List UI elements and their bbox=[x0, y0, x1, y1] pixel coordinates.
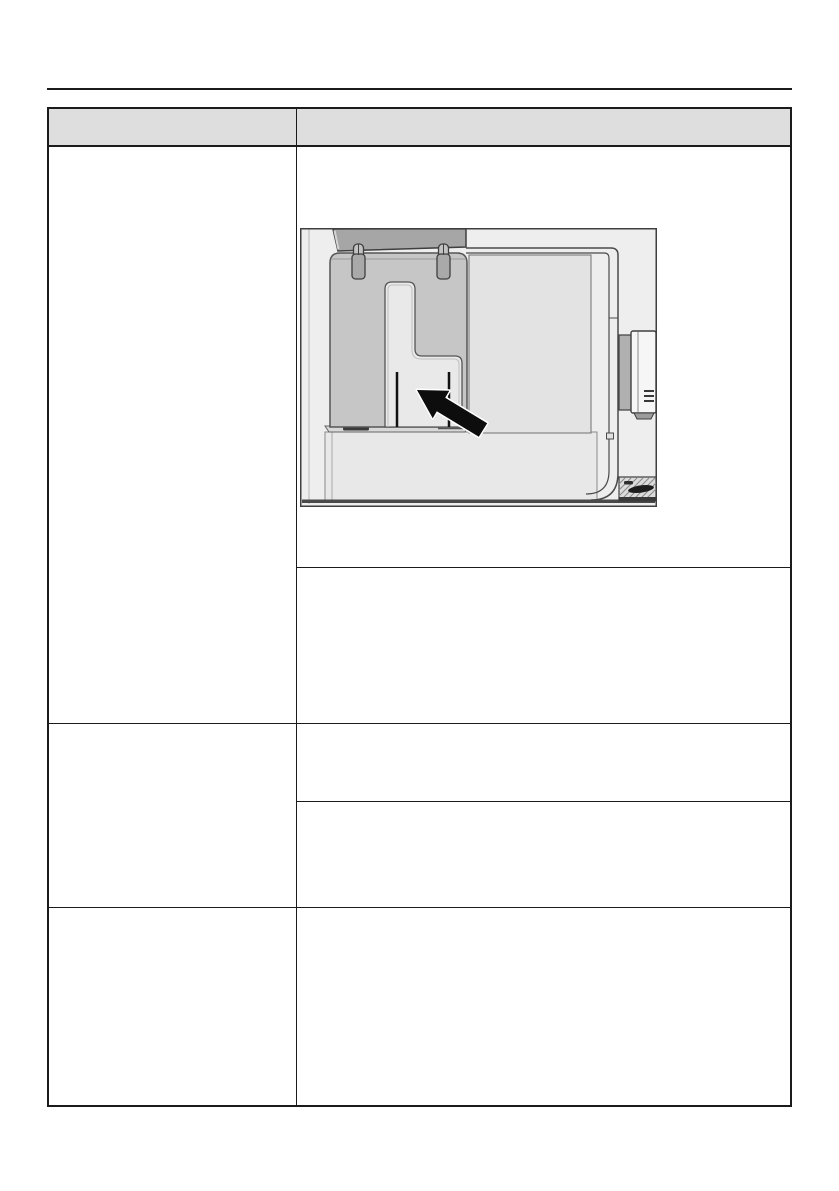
row1-right-cell-2 bbox=[297, 568, 790, 723]
drip-tray bbox=[619, 477, 656, 501]
base-front-panel bbox=[325, 432, 597, 500]
clip-icon bbox=[437, 244, 450, 279]
appliance-figure bbox=[300, 228, 657, 507]
header-rule bbox=[47, 88, 792, 90]
row3-right-cell bbox=[297, 908, 790, 1105]
dispenser-spout bbox=[619, 331, 656, 419]
table-row bbox=[49, 724, 790, 908]
table-row bbox=[49, 908, 790, 1105]
table-row bbox=[49, 147, 790, 724]
side-panel bbox=[469, 255, 591, 433]
table-header-col1 bbox=[49, 109, 297, 145]
table-header-col2 bbox=[297, 109, 790, 145]
row1-left-cell bbox=[49, 147, 297, 723]
row2-right-cell-1 bbox=[297, 724, 790, 802]
clip-icon bbox=[352, 244, 365, 279]
row3-left-cell bbox=[49, 908, 297, 1105]
troubleshooting-table bbox=[47, 107, 792, 1107]
table-header-row bbox=[49, 109, 790, 147]
appliance-illustration bbox=[300, 228, 657, 507]
manual-page bbox=[0, 0, 839, 1191]
machine-bottom-edge bbox=[302, 500, 655, 504]
row2-right-cell-2 bbox=[297, 802, 790, 907]
row2-left-cell bbox=[49, 724, 297, 907]
row1-right-cell-1 bbox=[297, 147, 790, 568]
